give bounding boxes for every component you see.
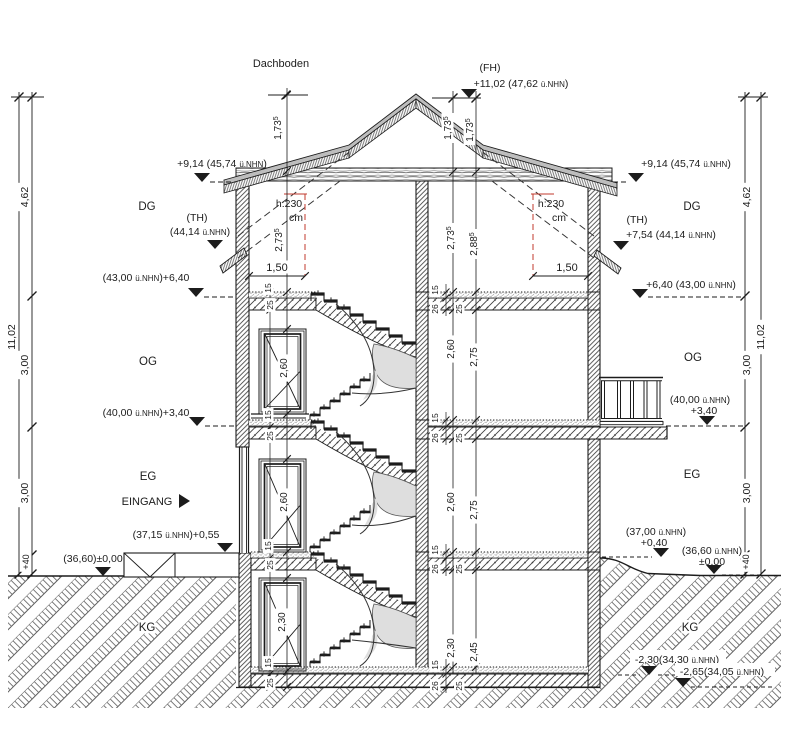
svg-text:+40: +40 (741, 554, 751, 569)
svg-text:15: 15 (263, 541, 273, 551)
svg-text:(36,60)±0,00: (36,60)±0,00 (63, 553, 123, 565)
svg-text:11,02: 11,02 (755, 324, 767, 350)
svg-text:2,75: 2,75 (469, 500, 480, 520)
svg-text:EG: EG (684, 469, 701, 481)
svg-text:1,50: 1,50 (266, 262, 287, 274)
svg-text:26: 26 (430, 681, 440, 691)
svg-text:Dachboden: Dachboden (253, 58, 309, 70)
svg-text:3,00: 3,00 (19, 355, 31, 376)
svg-text:EINGANG: EINGANG (122, 496, 173, 508)
svg-text:+9,14 (45,74 ü.NHN): +9,14 (45,74 ü.NHN) (177, 158, 267, 170)
svg-text:26: 26 (430, 564, 440, 574)
svg-text:1,50: 1,50 (556, 262, 577, 274)
svg-text:(FH): (FH) (480, 62, 501, 74)
svg-text:25: 25 (454, 433, 464, 443)
svg-text:(37,15 ü.NHN)+0,55: (37,15 ü.NHN)+0,55 (133, 529, 220, 541)
svg-text:KG: KG (682, 622, 699, 634)
svg-text:15: 15 (263, 283, 273, 293)
svg-text:3,00: 3,00 (19, 483, 31, 504)
svg-text:15: 15 (430, 660, 440, 670)
svg-text:15: 15 (263, 410, 273, 420)
svg-text:DG: DG (683, 201, 700, 213)
svg-text:11,02: 11,02 (6, 324, 18, 350)
svg-text:25: 25 (454, 564, 464, 574)
svg-text:EG: EG (140, 471, 157, 483)
svg-text:cm: cm (289, 212, 303, 224)
svg-text:15: 15 (430, 545, 440, 555)
svg-text:25: 25 (454, 681, 464, 691)
svg-text:+9,14 (45,74 ü.NHN): +9,14 (45,74 ü.NHN) (641, 158, 731, 170)
svg-text:2,30: 2,30 (277, 612, 288, 632)
svg-text:DG: DG (138, 201, 155, 213)
svg-text:4,62: 4,62 (19, 187, 31, 208)
svg-text:3,00: 3,00 (741, 483, 753, 504)
svg-text:(TH): (TH) (187, 212, 208, 224)
svg-text:+7,54 (44,14 ü.NHN): +7,54 (44,14 ü.NHN) (626, 229, 716, 241)
svg-text:15: 15 (263, 658, 273, 668)
svg-text:3,00: 3,00 (741, 355, 753, 376)
svg-text:cm: cm (552, 212, 566, 224)
svg-text:-2,65(34,05 ü.NHN): -2,65(34,05 ü.NHN) (680, 666, 764, 678)
svg-text:26: 26 (430, 304, 440, 314)
svg-text:2,45: 2,45 (469, 642, 480, 662)
svg-text:25: 25 (265, 300, 275, 310)
svg-text:h:230: h:230 (538, 198, 564, 210)
svg-text:h:230: h:230 (276, 198, 302, 210)
svg-text:25: 25 (265, 678, 275, 688)
svg-text:(40,00 ü.NHN)+3,40: (40,00 ü.NHN)+3,40 (103, 407, 190, 419)
svg-text:(TH): (TH) (627, 214, 648, 226)
svg-text:26: 26 (430, 433, 440, 443)
svg-text:+11,02 (47,62 ü.NHN): +11,02 (47,62 ü.NHN) (474, 78, 569, 90)
svg-text:15: 15 (430, 285, 440, 295)
svg-text:OG: OG (684, 352, 702, 364)
svg-text:OG: OG (139, 356, 157, 368)
svg-text:2,60: 2,60 (279, 492, 290, 512)
svg-text:2,60: 2,60 (446, 339, 457, 359)
svg-text:25: 25 (265, 431, 275, 441)
svg-text:(43,00 ü.NHN)+6,40: (43,00 ü.NHN)+6,40 (103, 272, 190, 284)
svg-text:25: 25 (454, 304, 464, 314)
svg-text:2,60: 2,60 (446, 492, 457, 512)
svg-text:KG: KG (139, 622, 156, 634)
svg-text:4,62: 4,62 (741, 187, 753, 208)
svg-text:15: 15 (430, 413, 440, 423)
svg-text:+6,40 (43,00 ü.NHN): +6,40 (43,00 ü.NHN) (646, 279, 736, 291)
svg-text:2,75: 2,75 (469, 347, 480, 367)
svg-text:2,30: 2,30 (446, 638, 457, 658)
svg-text:+0,40: +0,40 (641, 537, 668, 549)
svg-text:(44,14 ü.NHN): (44,14 ü.NHN) (170, 226, 230, 238)
svg-text:+40: +40 (21, 554, 31, 569)
svg-text:+3,40: +3,40 (691, 405, 718, 417)
svg-text:2,60: 2,60 (279, 358, 290, 378)
svg-text:25: 25 (265, 560, 275, 570)
